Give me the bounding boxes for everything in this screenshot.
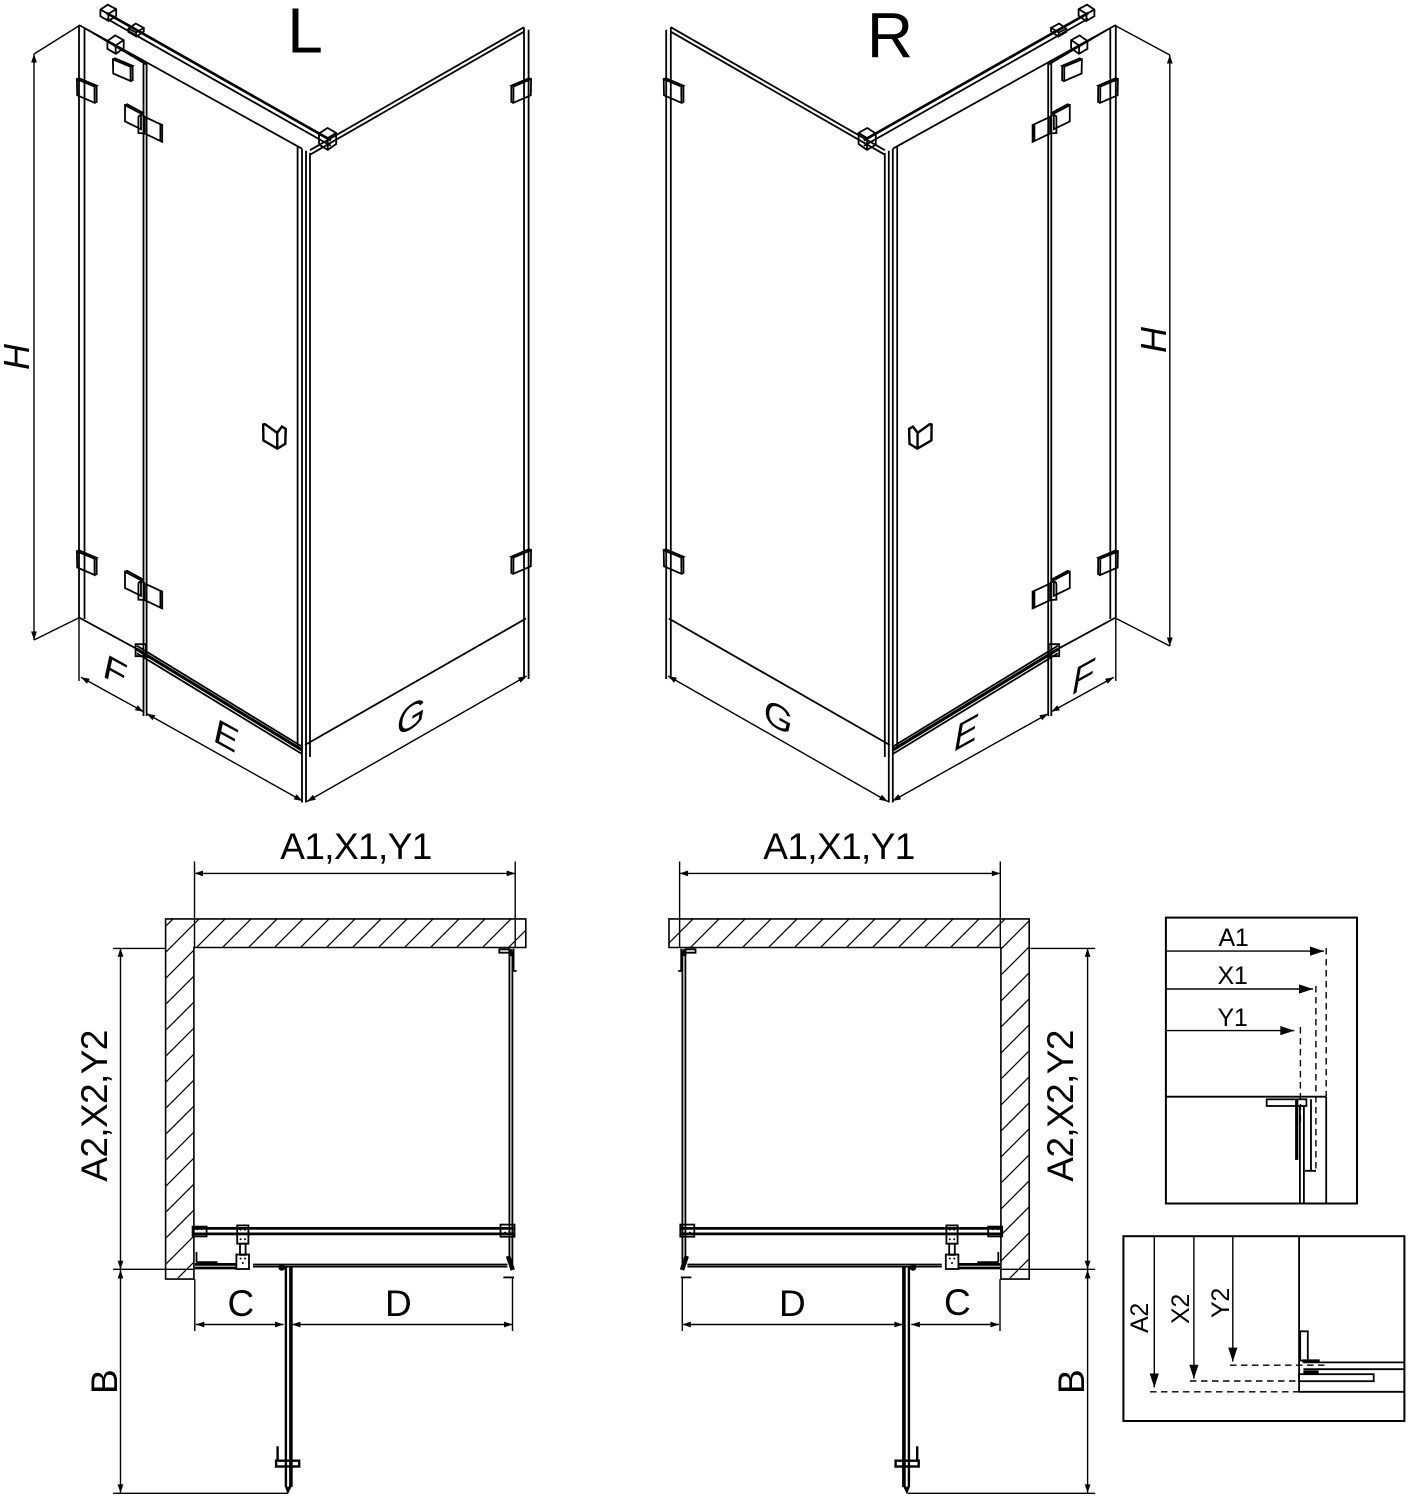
svg-text:A2: A2 (1126, 1303, 1154, 1333)
svg-text:H: H (1133, 326, 1174, 353)
svg-text:A1,X1,Y1: A1,X1,Y1 (280, 826, 432, 867)
svg-text:X1: X1 (1218, 962, 1248, 990)
svg-text:A1,X1,Y1: A1,X1,Y1 (763, 826, 915, 867)
svg-text:C: C (944, 1282, 970, 1323)
svg-text:A1: A1 (1219, 924, 1249, 952)
svg-text:B: B (84, 1370, 125, 1394)
svg-text:B: B (1051, 1370, 1092, 1394)
svg-text:D: D (385, 1283, 411, 1324)
svg-text:R: R (867, 0, 913, 72)
svg-text:L: L (287, 0, 323, 67)
svg-text:Y2: Y2 (1207, 1288, 1235, 1318)
svg-text:C: C (228, 1283, 254, 1324)
svg-text:X2: X2 (1167, 1294, 1195, 1324)
svg-text:Y1: Y1 (1218, 1004, 1248, 1032)
svg-text:D: D (779, 1283, 805, 1324)
svg-text:A2,X2,Y2: A2,X2,Y2 (1040, 1030, 1081, 1182)
svg-text:H: H (0, 343, 37, 370)
svg-text:A2,X2,Y2: A2,X2,Y2 (74, 1030, 115, 1182)
